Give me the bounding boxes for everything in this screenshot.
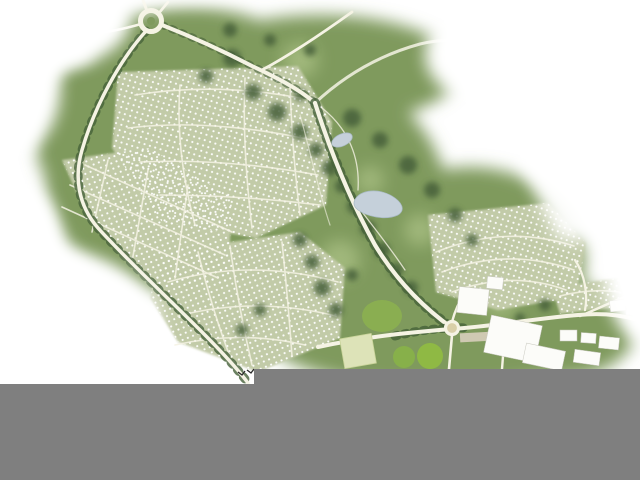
round-playfield	[393, 346, 415, 368]
playfield	[340, 333, 377, 368]
gray-footer-main	[0, 384, 640, 480]
roundabout-island	[147, 17, 155, 25]
gray-footer-bar	[0, 369, 640, 480]
gray-footer-step	[254, 369, 640, 385]
village-crossroads	[446, 322, 459, 335]
village-green	[362, 300, 402, 332]
screenshot-root	[0, 0, 640, 480]
round-playfield	[417, 343, 443, 369]
master-plan-map-image	[0, 0, 640, 480]
